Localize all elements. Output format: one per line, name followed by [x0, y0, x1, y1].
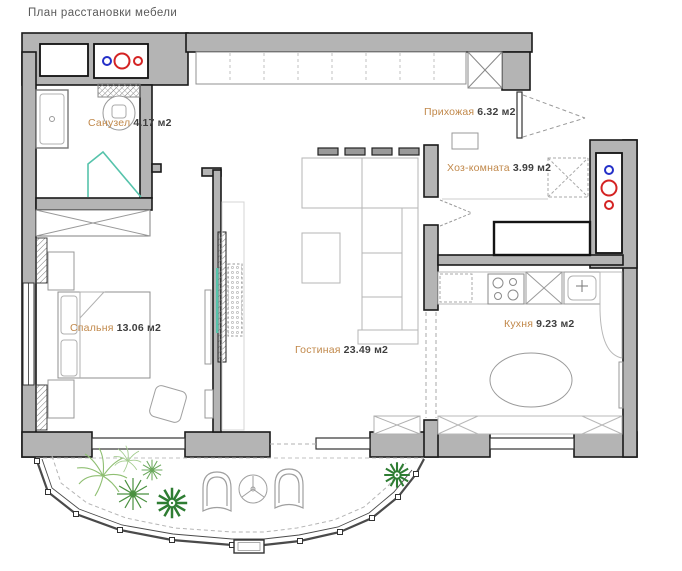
room-label-spalnya: Спальня13.06 м2	[70, 322, 161, 334]
shower-tray	[36, 90, 68, 148]
pouf	[148, 384, 188, 424]
entry-door-leaf	[517, 92, 522, 138]
sink	[564, 272, 600, 304]
balcony-armchair	[275, 469, 303, 508]
hall-cabinet-x	[468, 52, 502, 88]
sofa-armrest	[358, 330, 418, 344]
room-name: Кухня	[504, 318, 533, 330]
window-living-bottom	[316, 438, 370, 449]
nightstand	[48, 380, 74, 418]
kitchen-cabinet-x	[526, 272, 562, 304]
radiator-hatch	[36, 238, 47, 283]
balcony-armchair	[203, 472, 231, 511]
utility-door-swing	[440, 200, 472, 226]
room-label-prihozhaya: Прихожая6.32 м2	[424, 106, 516, 118]
bedroom-small-unit	[205, 390, 213, 418]
floor-plan-page: План расстановки мебели	[0, 0, 682, 571]
bathroom-door-teal	[88, 152, 141, 197]
entry-door-swing	[523, 118, 585, 137]
wall-bottom-mid1	[185, 432, 270, 457]
tv-bedroom	[205, 290, 211, 364]
fan-plant-icon	[384, 462, 410, 488]
room-area: 4.17 м2	[133, 117, 171, 129]
room-area: 3.99 м2	[513, 162, 551, 174]
kitchen-furniture	[438, 272, 623, 434]
room-name: Санузел	[88, 117, 130, 129]
wall-kitchen-top	[438, 255, 623, 265]
fan-plant-icon	[157, 488, 187, 518]
balcony-round-table	[239, 475, 267, 503]
room-name: Хоз-комната	[447, 162, 510, 174]
bathroom-fixtures	[36, 84, 141, 197]
room-label-hozkomnata: Хоз-комната3.99 м2	[447, 162, 551, 174]
room-area: 9.23 м2	[536, 318, 574, 330]
bedroom-wardrobe	[36, 210, 150, 236]
bedroom-furniture	[36, 210, 213, 424]
coffee-table	[302, 233, 340, 283]
palm-plant-small-icon	[114, 446, 142, 472]
wall-bottom-left	[22, 432, 92, 457]
room-area: 23.49 м2	[344, 344, 388, 356]
dining-table-oval	[490, 353, 572, 407]
wall-left	[22, 52, 36, 457]
bed	[58, 292, 150, 378]
room-name: Прихожая	[424, 106, 474, 118]
wall-door-stop-tick	[152, 164, 161, 172]
niche-empty	[40, 44, 88, 76]
hall-stool	[452, 133, 478, 149]
nightstand	[48, 252, 74, 290]
balcony-center-box	[234, 540, 264, 553]
wall-spot-bars	[318, 148, 419, 155]
wall-top	[186, 33, 532, 52]
meter-niche-top	[94, 44, 148, 78]
kitchen-opening-dashed	[426, 312, 436, 418]
bush-plant-icon	[117, 478, 149, 510]
stove	[488, 274, 524, 304]
radiator-hatch	[36, 385, 47, 430]
bench-x	[374, 416, 420, 434]
entry-door-swing	[523, 95, 585, 118]
counter-right-curve	[600, 272, 622, 358]
pebble-column	[228, 264, 242, 336]
meter-niche-right	[596, 153, 622, 253]
room-label-gostinaya: Гостиная23.49 м2	[295, 344, 388, 356]
room-name: Спальня	[70, 322, 114, 334]
hall-wardrobe	[196, 52, 466, 84]
floor-plan-drawing	[0, 0, 682, 571]
window-seat	[438, 416, 622, 434]
wall-mid-upper	[424, 145, 438, 197]
wall-entry-stub	[502, 52, 530, 90]
wall-mid-lower-a	[424, 225, 438, 310]
room-label-kuhnya: Кухня9.23 м2	[504, 318, 574, 330]
wall-bath-bottom	[36, 198, 152, 210]
utility-cabinet-x	[548, 158, 588, 197]
balcony	[35, 446, 425, 553]
window-bedroom-bottom	[92, 438, 185, 449]
bush-plant-small-icon	[142, 460, 163, 481]
wall-mid-lower-b	[424, 420, 438, 457]
entry-door	[517, 92, 585, 138]
room-area: 13.06 м2	[117, 322, 161, 334]
utility-dark-cabinet	[494, 222, 590, 255]
room-label-sanuzel: Санузел4.17 м2	[88, 117, 172, 129]
living-room-furniture	[302, 148, 436, 434]
wall-bath-right	[140, 85, 152, 198]
room-area: 6.32 м2	[477, 106, 515, 118]
window-kitchen-bottom	[490, 438, 574, 449]
room-name: Гостиная	[295, 344, 341, 356]
